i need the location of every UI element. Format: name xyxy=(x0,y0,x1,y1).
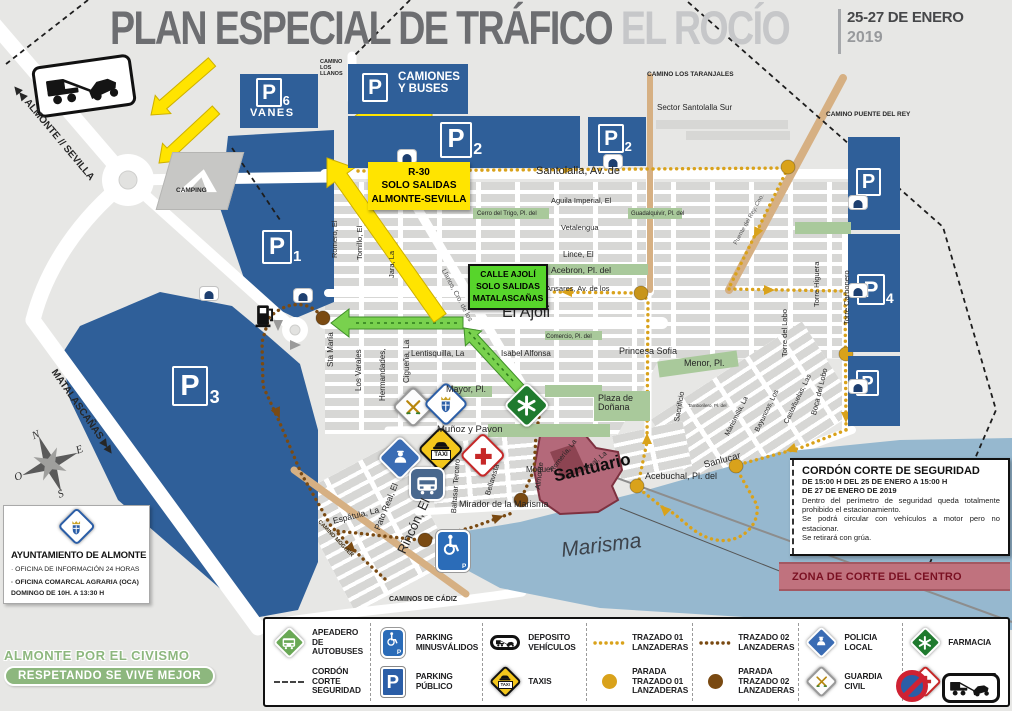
street-label: Hermandades, xyxy=(379,349,387,401)
street-label: Plaza de Doñana xyxy=(598,394,633,413)
title-main: PLAN ESPECIAL DE TRÁFICO xyxy=(110,1,621,54)
legend-label: TRAZADO 01 LANZADERAS xyxy=(632,633,688,652)
police-icon xyxy=(803,626,839,660)
legend-column: APEADERO DE AUTOBUSESCORDÓN CORTE SEGURI… xyxy=(267,623,370,701)
legend-label: PARKING MINUSVÁLIDOS xyxy=(416,633,478,652)
cordon-line: DE 27 DE ENERO DE 2019 xyxy=(802,486,1000,495)
street-label: CAMINOS DE CÁDIZ xyxy=(389,596,457,603)
no-parking-icon xyxy=(896,670,928,707)
street-label: VANES xyxy=(250,108,295,120)
street-label: Almonte xyxy=(534,462,545,490)
traffic-plan-poster: PLAN ESPECIAL DE TRÁFICO EL ROCÍO 25-27 … xyxy=(0,0,1012,711)
street-label: Vetalengua xyxy=(561,224,599,232)
street-label: Los Varales xyxy=(355,349,363,391)
legend-item: FARMACIA xyxy=(907,626,1002,660)
cordon-info-box: CORDÓN CORTE DE SEGURIDAD DE 15:00 H DEL… xyxy=(790,458,1010,556)
legend-label: DEPOSITO VEHÍCULOS xyxy=(528,633,582,652)
circy-icon xyxy=(591,665,627,699)
ayuntamiento-line: · OFICINA COMARCAL AGRARIA (OCA) xyxy=(11,579,139,586)
busd-icon xyxy=(271,626,307,660)
street-label: CAMINO LOS LLANOS xyxy=(320,60,343,77)
street-label: CAMINO LOS TARANJALES xyxy=(647,72,734,79)
dashline-icon xyxy=(271,665,307,699)
cordon-title: CORDÓN CORTE DE SEGURIDAD xyxy=(802,465,1000,477)
street-label: Sta María xyxy=(327,332,335,367)
street-label: CAMPING xyxy=(176,188,207,195)
street-label: Tomillo, El xyxy=(356,226,364,260)
page-title: PLAN ESPECIAL DE TRÁFICO EL ROCÍO xyxy=(110,0,959,58)
street-label: Marisma xyxy=(560,530,643,562)
street-label: Romero, El xyxy=(331,220,339,258)
legend-item: POLICIA LOCAL xyxy=(803,626,898,660)
street-label: Cerro del Trigo, Pl. del xyxy=(477,211,537,217)
event-dates: 25-27 DE ENERO 2019 xyxy=(847,9,964,48)
cordon-icons xyxy=(896,670,1000,707)
street-label: Torre del Lobo xyxy=(781,309,789,357)
street-label: Torre Higuera xyxy=(813,262,821,307)
legend-item: CORDÓN CORTE SEGURIDAD xyxy=(271,665,366,699)
legend-label: GUARDIA CIVIL xyxy=(844,672,898,691)
street-label: Tamborilero, Pl. del xyxy=(688,404,727,409)
legend-label: TAXIS xyxy=(528,677,551,687)
ayuntamiento-line: DOMINGO DE 10H. A 13:30 H xyxy=(11,590,104,597)
street-label: Guadalquivir, Pl. del xyxy=(631,211,684,217)
legend-item: GUARDIA CIVIL xyxy=(803,665,898,699)
legend-label: FARMACIA xyxy=(948,638,991,648)
street-label: ◀◀ ALMONTE // SEVILLA xyxy=(10,84,96,183)
zona-corte-bar: ZONA DE CORTE DEL CENTRO xyxy=(779,562,1010,591)
ppub-icon: P xyxy=(375,665,411,699)
sign-r30-solo-salidas: R-30 SOLO SALIDAS ALMONTE-SEVILLA xyxy=(368,162,470,210)
street-label: Acebron, Pl. del xyxy=(551,266,611,275)
street-label: Rincón, El xyxy=(395,496,432,555)
farmacia-icon xyxy=(907,626,943,660)
street-label: Bayuncos, Los xyxy=(754,389,781,433)
cordon-paragraph: Dentro del perímetro de seguridad queda … xyxy=(802,496,1000,515)
street-label: Menor, Pl. xyxy=(684,359,725,368)
legend-item: APEADERO DE AUTOBUSES xyxy=(271,626,366,660)
title-accent: EL ROCÍO xyxy=(621,1,789,54)
legend-label: POLICIA LOCAL xyxy=(844,633,898,652)
street-label: CAMIONES Y BUSES xyxy=(398,71,460,95)
pdis-icon: P xyxy=(375,626,411,660)
street-label: Ansares, Av. de los xyxy=(546,285,610,293)
street-label: Comercio, Pl. del xyxy=(546,334,592,340)
street-label: Jara, La xyxy=(388,251,396,278)
legend-label: CORDÓN CORTE SEGURIDAD xyxy=(312,667,366,696)
street-label: Lince, El xyxy=(563,251,594,259)
title-divider xyxy=(838,9,841,54)
street-label: Sector Santolalla Sur xyxy=(657,104,732,112)
taxi-icon: TAXI xyxy=(487,665,523,699)
street-label: Lentisquilla, La xyxy=(411,350,464,358)
ayuntamiento-crest-icon xyxy=(59,509,95,550)
legend-label: PARADA TRAZADO 02 LANZADERAS xyxy=(738,667,794,696)
street-label: CAMINO PUENTE DEL REY xyxy=(826,112,910,119)
street-label: Torre Carbonero xyxy=(843,270,851,325)
legend-label: APEADERO DE AUTOBUSES xyxy=(312,628,366,657)
legend-column: TRAZADO 01 LANZADERASPARADA TRAZADO 01 L… xyxy=(586,623,692,701)
street-label: Acebuchal, Pl. del xyxy=(645,472,717,481)
legend-column: POLICIA LOCALGUARDIA CIVIL xyxy=(798,623,902,701)
street-label: Bellavista xyxy=(484,463,501,496)
tow-icon xyxy=(487,626,523,660)
street-label: Boca del Lobo xyxy=(810,367,829,415)
street-label: Marismilla, La xyxy=(724,396,750,438)
legend-item: PARADA TRAZADO 02 LANZADERAS xyxy=(697,665,794,699)
civismo-banner: ALMONTE POR EL CIVISMO RESPETANDO SE VIV… xyxy=(4,648,215,686)
street-label: Aguila Imperial, El xyxy=(551,197,611,205)
legend-item: PARADA TRAZADO 01 LANZADERAS xyxy=(591,665,688,699)
legend-item: DEPOSITO VEHÍCULOS xyxy=(487,626,582,660)
legend-label: PARADA TRAZADO 01 LANZADERAS xyxy=(632,667,688,696)
circb-icon xyxy=(697,665,733,699)
dotsb-icon xyxy=(697,626,733,660)
street-label: Sanlucar xyxy=(703,451,742,470)
cordon-paragraph: Se retirará con grúa. xyxy=(802,533,1000,542)
legend-item: TRAZADO 01 LANZADERAS xyxy=(591,626,688,660)
legend-column: TRAZADO 02 LANZADERASPARADA TRAZADO 02 L… xyxy=(692,623,798,701)
legend-column: DEPOSITO VEHÍCULOSTAXITAXIS xyxy=(482,623,586,701)
ayuntamiento-title: AYUNTAMIENTO DE ALMONTE xyxy=(11,550,146,561)
legend-item: PPARKING MINUSVÁLIDOS xyxy=(375,626,478,660)
cordon-line: DE 15:00 H DEL 25 DE ENERO A 15:00 H xyxy=(802,477,1000,486)
street-label: CAMINO MOGUER xyxy=(316,520,354,559)
civismo-line2: RESPETANDO SE VIVE MEJOR xyxy=(4,666,215,686)
street-labels: Santolalla, Av. deSector Santolalla SurC… xyxy=(0,0,1012,711)
legend-item: TAXITAXIS xyxy=(487,665,582,699)
legend-label: TRAZADO 02 LANZADERAS xyxy=(738,633,794,652)
street-label: Mayor, Pl. xyxy=(446,385,486,394)
date-range: 25-27 DE ENERO xyxy=(847,9,964,28)
legend-item: PPARKING PÚBLICO xyxy=(375,665,478,699)
legend-label: PARKING PÚBLICO xyxy=(416,672,478,691)
zona-corte-label: ZONA DE CORTE DEL CENTRO xyxy=(779,571,962,583)
street-label: Isabel Alfonsa xyxy=(501,350,551,358)
legend-column: PPARKING MINUSVÁLIDOSPPARKING PÚBLICO xyxy=(370,623,482,701)
legend-item: TRAZADO 02 LANZADERAS xyxy=(697,626,794,660)
street-label: Mirador de la Marisma xyxy=(459,500,549,509)
guardia-icon xyxy=(803,665,839,699)
sign-calle-ajoli: CALLE AJOLÍ SOLO SALIDAS MATALASCAÑAS xyxy=(468,264,548,310)
ayuntamiento-info-box: AYUNTAMIENTO DE ALMONTE · OFICINA DE INF… xyxy=(3,505,150,604)
cordon-dashed-edge xyxy=(792,460,794,554)
tow-truck-sign-icon xyxy=(942,673,1000,704)
street-label: Sacrificio xyxy=(673,391,686,422)
street-label: Puente del Rey, Cno. xyxy=(733,194,766,247)
street-label: Princesa Sofia xyxy=(619,347,677,356)
civismo-line1: ALMONTE POR EL CIVISMO xyxy=(4,648,215,663)
cordon-paragraph: Se podrá circular con vehículos a motor … xyxy=(802,514,1000,533)
street-label: Cigueña, La xyxy=(403,340,411,383)
year: 2019 xyxy=(847,28,964,48)
ayuntamiento-line: · OFICINA DE INFORMACIÓN 24 HORAS xyxy=(11,566,139,573)
street-label: Castañuelas, Las xyxy=(783,373,813,425)
street-label: Santolalla, Av. de xyxy=(536,166,620,178)
dotsy-icon xyxy=(591,626,627,660)
street-label: Muñoz y Pavon xyxy=(437,425,502,435)
